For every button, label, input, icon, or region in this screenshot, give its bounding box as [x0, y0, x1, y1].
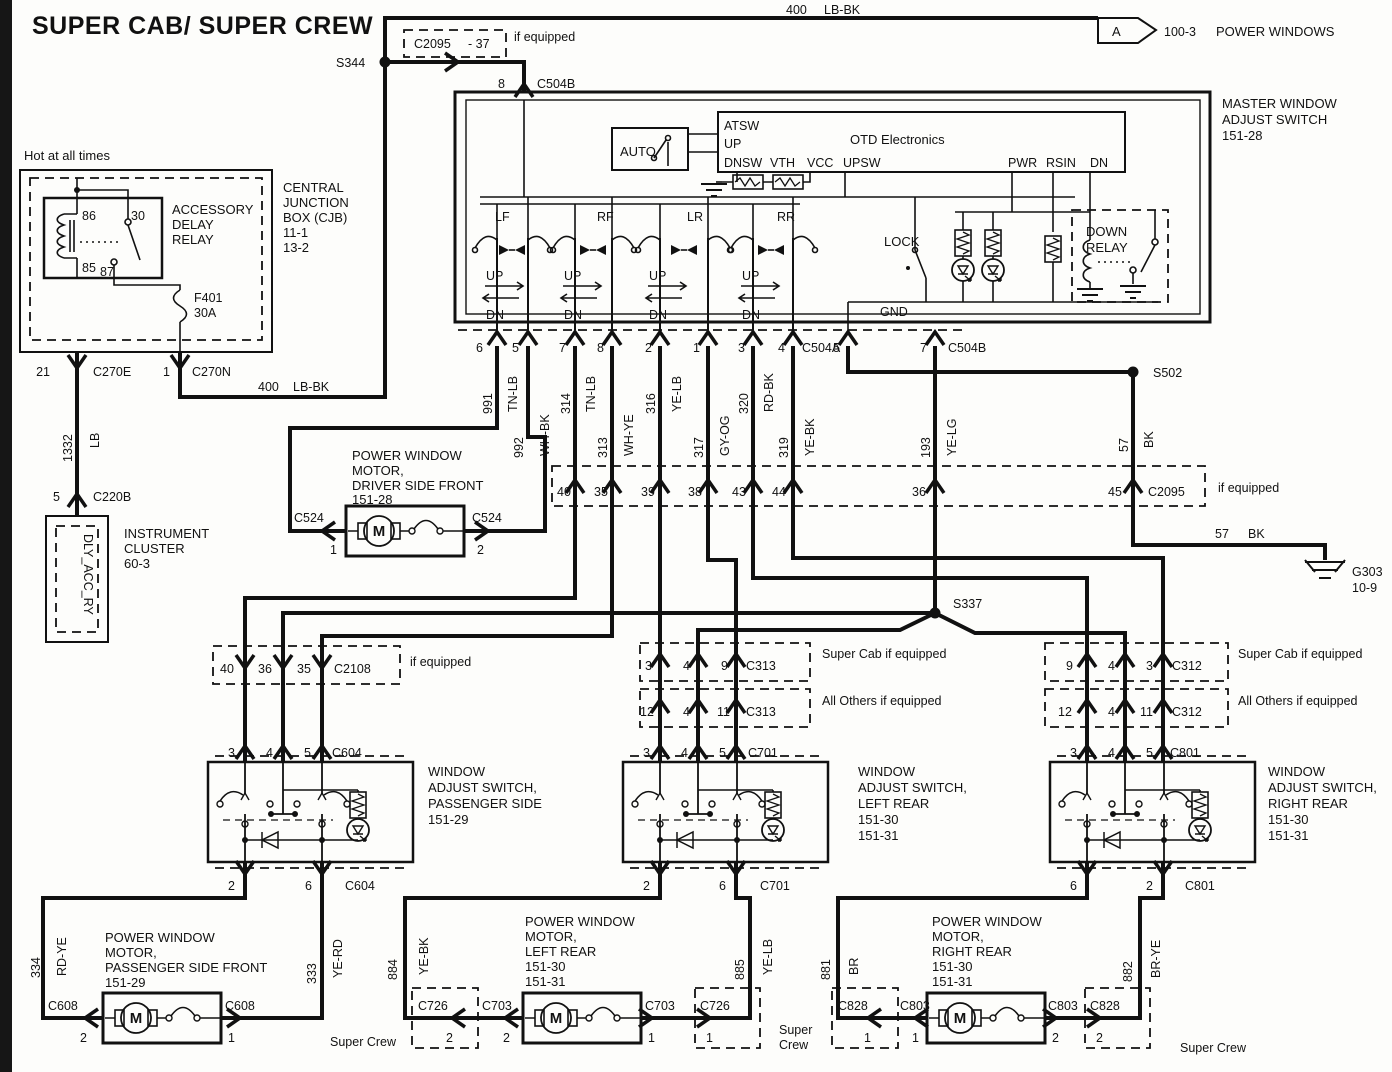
cluster-lf: UP DN — [473, 197, 553, 330]
relay-name-2: DELAY — [172, 217, 214, 232]
pf-motor-m: M — [130, 1010, 143, 1027]
c312-rows: 9 4 3 C312 Super Cab if equipped 12 4 11… — [1045, 643, 1362, 727]
c2108-p40: 40 — [220, 662, 234, 676]
wire-320-color: RD-BK — [762, 372, 776, 412]
relay-pin-86: 86 — [82, 209, 96, 223]
splice-s344: S344 — [336, 56, 365, 70]
wire-319-label: 319 — [777, 437, 791, 458]
flag-ref: 100-3 — [1164, 25, 1196, 39]
wire-57-color: BK — [1142, 431, 1156, 448]
c2108-p36: 36 — [258, 662, 272, 676]
c2095-p36: 36 — [912, 485, 926, 499]
lr-dn: DN — [649, 308, 667, 322]
conn-c504b: C504B — [948, 341, 986, 355]
c2095-p44: 44 — [772, 485, 786, 499]
cjb-ref-1: 11-1 — [283, 225, 308, 240]
c312-r1-p3: 3 — [1146, 659, 1153, 673]
lrm-ref1: 151-30 — [525, 959, 565, 974]
passenger-front-motor: 334 RD-YE 333 YE-RD POWER WINDOW MOTOR, … — [29, 930, 397, 1049]
lr-sw-3: LEFT REAR — [858, 796, 929, 811]
c504a-pin4: 4 — [778, 341, 785, 355]
wire-193-label: 193 — [919, 437, 933, 458]
c504b-pin7: 7 — [920, 341, 927, 355]
relay-pin-30: 30 — [131, 209, 145, 223]
fuse-name: F401 — [194, 291, 223, 305]
lrm-2: MOTOR, — [525, 929, 577, 944]
wire-334-label: 334 — [29, 957, 43, 978]
right-rear-motor: 881 BR 882 BR-YE POWER WINDOW MOTOR, RIG… — [819, 914, 1247, 1055]
wire-317 — [708, 346, 736, 762]
lr-sw-ref1: 151-30 — [858, 812, 898, 827]
conn-c313-2: C313 — [746, 705, 776, 719]
wire-991 — [290, 346, 497, 531]
c801-p6: 6 — [1070, 879, 1077, 893]
c703-p2: 2 — [503, 1031, 510, 1045]
wire-316-color: YE-LB — [670, 376, 684, 412]
c604-p4: 4 — [266, 746, 273, 760]
relay-name-1: ACCESSORY — [172, 202, 254, 217]
rr-dn: DN — [742, 308, 760, 322]
c2095-p40: 40 — [557, 485, 571, 499]
lrm-ref2: 151-31 — [525, 974, 565, 989]
wire-193-color: YE-LG — [945, 418, 959, 456]
rr-sw-1: WINDOW — [1268, 764, 1326, 779]
wiring-diagram-page: SUPER CAB/ SUPER CREW 400 LB-BK A 100-3 … — [0, 0, 1392, 1072]
otd-pwr: PWR — [1008, 156, 1037, 170]
c504a-pin2: 2 — [645, 341, 652, 355]
pf-motor-3: PASSENGER SIDE FRONT — [105, 960, 267, 975]
drv-motor-2: MOTOR, — [352, 463, 404, 478]
wire-314 — [245, 346, 575, 762]
c801-p2: 2 — [1146, 879, 1153, 893]
wire-319-color: YE-BK — [803, 418, 817, 456]
c608-p2: 2 — [80, 1031, 87, 1045]
all-others-mid: All Others if equipped — [822, 694, 942, 708]
conn-c828-r: C828 — [1090, 999, 1120, 1013]
lf-up: UP — [486, 269, 503, 283]
wire-885-label: 885 — [733, 959, 747, 980]
c504b-pin5: 5 — [833, 341, 840, 355]
c313-rows: 3 4 9 C313 Super Cab if equipped 12 4 11… — [640, 643, 946, 727]
otd-rsin: RSIN — [1046, 156, 1076, 170]
super-mid: Super — [779, 1023, 812, 1037]
wiring-diagram: SUPER CAB/ SUPER CREW 400 LB-BK A 100-3 … — [0, 0, 1392, 1072]
wire-57-bk — [1133, 372, 1325, 560]
rr-sw-3: RIGHT REAR — [1268, 796, 1348, 811]
drv-motor-3: DRIVER SIDE FRONT — [352, 478, 484, 493]
otd-title: OTD Electronics — [850, 132, 945, 147]
pass-sw-3: PASSENGER SIDE — [428, 796, 542, 811]
wire-882-color: BR-YE — [1149, 940, 1163, 978]
wire-314-color: TN-LB — [584, 376, 598, 412]
rf-dn: DN — [564, 308, 582, 322]
conn-c701-bot: C701 — [760, 879, 790, 893]
otd-dnsw: DNSW — [724, 156, 762, 170]
relay-pin-87: 87 — [100, 265, 114, 279]
cluster-name-1: INSTRUMENT — [124, 526, 209, 541]
c313-r1-p9: 9 — [721, 659, 728, 673]
c828-p2: 2 — [1096, 1031, 1103, 1045]
c2095-pin37: - 37 — [468, 37, 490, 51]
conn-c726-l: C726 — [418, 999, 448, 1013]
conn-c801-top: C801 — [1170, 746, 1200, 760]
cjb-name-3: BOX (CJB) — [283, 210, 347, 225]
wire-333-label: 333 — [305, 963, 319, 984]
lf-dn: DN — [486, 308, 504, 322]
wire-991-label: 991 — [481, 393, 495, 414]
c313-r1-p4: 4 — [683, 659, 690, 673]
rrm-ref2: 151-31 — [932, 974, 972, 989]
wire-ground-right-switch — [935, 613, 1125, 762]
c312-r1-p9: 9 — [1066, 659, 1073, 673]
super-crew-right: Super Crew — [1180, 1041, 1247, 1055]
pin-5-c220b: 5 — [53, 490, 60, 504]
drv-motor-m: M — [373, 523, 386, 540]
lrm-3: LEFT REAR — [525, 944, 596, 959]
super-cab-mid: Super Cab if equipped — [822, 647, 946, 661]
page-title: SUPER CAB/ SUPER CREW — [32, 12, 373, 40]
wire-400-label-2: 400 — [258, 380, 279, 394]
if-equipped-top: if equipped — [514, 30, 575, 44]
conn-c270e: C270E — [93, 365, 131, 379]
super-crew-left: Super Crew — [330, 1035, 397, 1049]
relay-name-3: RELAY — [172, 232, 214, 247]
wire-992-label: 992 — [512, 437, 526, 458]
wire-57-color-2: BK — [1248, 527, 1265, 541]
pf-motor-ref: 151-29 — [105, 975, 145, 990]
c313-r1-p3: 3 — [645, 659, 652, 673]
c803-p1: 1 — [912, 1031, 919, 1045]
rrm-m: M — [954, 1010, 967, 1027]
otd-atsw: ATSW — [724, 119, 759, 133]
conn-c803-r: C803 — [1048, 999, 1078, 1013]
conn-c608-l: C608 — [48, 999, 78, 1013]
conn-c312-2: C312 — [1172, 705, 1202, 719]
pass-sw-2: ADJUST SWITCH, — [428, 780, 537, 795]
c504a-pin5: 5 — [512, 341, 519, 355]
wire-400-color: LB-BK — [824, 3, 861, 17]
auto-otd-links — [688, 134, 718, 152]
fuse-symbol — [174, 290, 187, 322]
all-others-right: All Others if equipped — [1238, 694, 1358, 708]
down-relay-2: RELAY — [1086, 240, 1128, 255]
conn-c803-l: C803 — [900, 999, 930, 1013]
right-rear-switch: 3 4 5 C801 WINDOW ADJUST SWITCH, RIGHT R… — [1050, 746, 1377, 893]
wire-882-label: 882 — [1121, 961, 1135, 982]
conn-c703-l: C703 — [482, 999, 512, 1013]
splice-dot-s344 — [380, 57, 391, 68]
wire-317-color: GY-OG — [718, 415, 732, 456]
pin-1-c270n: 1 — [163, 365, 170, 379]
instrument-cluster: DLY_ACC_RY INSTRUMENT CLUSTER 60-3 — [46, 516, 209, 642]
wire-313-label: 313 — [596, 437, 610, 458]
c803-p2: 2 — [1052, 1031, 1059, 1045]
cluster-rr: UP DN — [729, 197, 818, 330]
conn-c270n: C270N — [192, 365, 231, 379]
c504a-pin8: 8 — [597, 341, 604, 355]
g303-label: G303 — [1352, 565, 1383, 579]
passenger-switch: 3 4 5 C604 WINDOW ADJUST SWITCH, PASSENG… — [208, 746, 542, 893]
relay-pin-85: 85 — [82, 261, 96, 275]
driver-front-motor: POWER WINDOW MOTOR, DRIVER SIDE FRONT 15… — [294, 448, 502, 557]
c604-p6: 6 — [305, 879, 312, 893]
conn-c524-l: C524 — [294, 511, 324, 525]
wire-313-color: WH-YE — [622, 414, 636, 456]
relay-coil — [57, 214, 64, 258]
conn-c220b: C220B — [93, 490, 131, 504]
pf-motor-2: MOTOR, — [105, 945, 157, 960]
conn-c313-1: C313 — [746, 659, 776, 673]
wire-881-label: 881 — [819, 959, 833, 980]
rr-sw-ref2: 151-31 — [1268, 828, 1308, 843]
lrm-1: POWER WINDOW — [525, 914, 635, 929]
conn-c504b-top: C504B — [537, 77, 575, 91]
c2108-p35: 35 — [297, 662, 311, 676]
otd-vth: VTH — [770, 156, 795, 170]
otd-dn: DN — [1090, 156, 1108, 170]
lr-label: LR — [687, 210, 703, 224]
c801-p4: 4 — [1108, 746, 1115, 760]
central-junction-box: Hot at all times 86 30 85 87 ACCESSORY D… — [20, 148, 349, 504]
conn-c604-bot: C604 — [345, 879, 375, 893]
super-cab-right: Super Cab if equipped — [1238, 647, 1362, 661]
remote-connector-dashes — [215, 756, 1247, 868]
wire-400-label: 400 — [786, 3, 807, 17]
splice-s337: S337 — [953, 597, 982, 611]
c701-p3: 3 — [643, 746, 650, 760]
wire-992 — [464, 346, 545, 531]
wire-1332-color: LB — [88, 433, 102, 448]
c2095-p43: 43 — [732, 485, 746, 499]
c2095-p38: 38 — [688, 485, 702, 499]
c504a-pin3: 3 — [738, 341, 745, 355]
c801-p3: 3 — [1070, 746, 1077, 760]
otd-up: UP — [724, 137, 741, 151]
pin-8: 8 — [498, 77, 505, 91]
wire-57-label-2: 57 — [1215, 527, 1229, 541]
cjb-name-2: JUNCTION — [283, 195, 349, 210]
wire-57-label: 57 — [1117, 438, 1131, 452]
c701-p5: 5 — [719, 746, 726, 760]
wire-400-color-2: LB-BK — [293, 380, 330, 394]
c604-p5: 5 — [304, 746, 311, 760]
wire-333-color: YE-RD — [331, 939, 345, 978]
c703-p1: 1 — [648, 1031, 655, 1045]
conn-c604-top: C604 — [332, 746, 362, 760]
crew-mid: Crew — [779, 1038, 809, 1052]
if-equipped-c2108: if equipped — [410, 655, 471, 669]
relay-core — [70, 220, 74, 252]
auto-label: AUTO — [620, 144, 656, 159]
page-edge-bar — [0, 0, 12, 1072]
flag-letter: A — [1112, 24, 1121, 39]
cluster-ref: 60-3 — [124, 556, 150, 571]
splice-dot-s337 — [930, 608, 941, 619]
c313-r2-p12: 12 — [640, 705, 654, 719]
c608-p1: 1 — [228, 1031, 235, 1045]
cluster-rf: UP DN — [551, 197, 637, 330]
wire-317-label: 317 — [692, 437, 706, 458]
c701-p6: 6 — [719, 879, 726, 893]
otd-upsw: UPSW — [843, 156, 881, 170]
if-equipped-mid: if equipped — [1218, 481, 1279, 495]
lr-sw-ref2: 151-31 — [858, 828, 898, 843]
master-outer-box — [455, 92, 1210, 322]
left-rear-switch: 3 4 5 C701 WINDOW ADJUST SWITCH, LEFT RE… — [623, 746, 967, 893]
conn-c726-r: C726 — [700, 999, 730, 1013]
wire-884-color: YE-BK — [417, 937, 431, 975]
cjb-name-1: CENTRAL — [283, 180, 344, 195]
wire-881-color: BR — [847, 958, 861, 975]
c701-p2: 2 — [643, 879, 650, 893]
rr-sw-ref1: 151-30 — [1268, 812, 1308, 827]
otd-vcc: VCC — [807, 156, 833, 170]
c504a-pin6: 6 — [476, 341, 483, 355]
c504a-pin7: 7 — [559, 341, 566, 355]
conn-c828-l: C828 — [838, 999, 868, 1013]
rrm-2: MOTOR, — [932, 929, 984, 944]
conn-c2095-top: C2095 — [414, 37, 451, 51]
c828-p1: 1 — [864, 1031, 871, 1045]
conn-c2095-mid: C2095 — [1148, 485, 1185, 499]
hot-label: Hot at all times — [24, 148, 110, 163]
wire-316-label: 316 — [644, 393, 658, 414]
conn-c701-top: C701 — [748, 746, 778, 760]
c524-pin2: 2 — [477, 543, 484, 557]
c312-r2-p11: 11 — [1140, 705, 1153, 719]
c726-p1: 1 — [706, 1031, 713, 1045]
pf-motor-1: POWER WINDOW — [105, 930, 215, 945]
wire-gnd-s502 — [848, 346, 1133, 372]
cluster-lr: UP DN — [636, 197, 733, 330]
conn-c801-bot: C801 — [1185, 879, 1215, 893]
rrm-1: POWER WINDOW — [932, 914, 1042, 929]
master-window-switch: MASTER WINDOW ADJUST SWITCH 151-28 AUTO … — [455, 92, 1338, 330]
master-ref: 151-28 — [1222, 128, 1262, 143]
g303-ref: 10-9 — [1352, 581, 1377, 595]
wire-885-color: YE-LB — [761, 939, 775, 975]
c604-p3: 3 — [228, 746, 235, 760]
wire-992-color: WH-BK — [538, 414, 552, 456]
lr-up: UP — [649, 269, 666, 283]
g303-ground-symbol — [1305, 560, 1345, 578]
wire-ground-mid-switch — [698, 613, 935, 762]
conn-c524-r: C524 — [472, 511, 502, 525]
conn-c608-r: C608 — [225, 999, 255, 1013]
conn-c703-r: C703 — [645, 999, 675, 1013]
splice-s502: S502 — [1153, 366, 1182, 380]
pin-21: 21 — [36, 365, 50, 379]
wire-1332-label: 1332 — [61, 434, 75, 462]
splice-dot-s502 — [1128, 367, 1139, 378]
master-name-1: MASTER WINDOW — [1222, 96, 1338, 111]
c312-r2-p12: 12 — [1058, 705, 1072, 719]
cluster-module: DLY_ACC_RY — [81, 534, 95, 615]
c701-p4: 4 — [681, 746, 688, 760]
c313-r2-p4: 4 — [683, 705, 690, 719]
c313-r2-p11: 11 — [717, 705, 730, 719]
drv-motor-1: POWER WINDOW — [352, 448, 462, 463]
c504a-pin1: 1 — [693, 341, 700, 355]
c2095-p39: 39 — [641, 485, 655, 499]
cluster-name-2: CLUSTER — [124, 541, 185, 556]
wire-314-label: 314 — [559, 393, 573, 414]
auto-switch-symbol — [654, 140, 668, 166]
circuit-dest: POWER WINDOWS — [1216, 24, 1335, 39]
rr-up: UP — [742, 269, 759, 283]
conn-c312-1: C312 — [1172, 659, 1202, 673]
rr-sw-2: ADJUST SWITCH, — [1268, 780, 1377, 795]
pass-sw-ref: 151-29 — [428, 812, 468, 827]
fuse-amps: 30A — [194, 306, 217, 320]
wire-884-label: 884 — [386, 959, 400, 980]
gnd-label: GND — [880, 305, 908, 319]
lr-sw-2: ADJUST SWITCH, — [858, 780, 967, 795]
resistor-links — [722, 172, 810, 182]
c604-p2: 2 — [228, 879, 235, 893]
c726-p2: 2 — [446, 1031, 453, 1045]
lr-sw-1: WINDOW — [858, 764, 916, 779]
wire-334-color: RD-YE — [55, 937, 69, 976]
rf-up: UP — [564, 269, 581, 283]
lrm-m: M — [550, 1010, 563, 1027]
pass-sw-1: WINDOW — [428, 764, 486, 779]
conn-c2108: C2108 — [334, 662, 371, 676]
wire-320-label: 320 — [737, 393, 751, 414]
wire-labels: 991 TN-LB 992 WH-BK 314 TN-LB 313 WH-YE … — [481, 372, 1156, 458]
c2095-p45: 45 — [1108, 485, 1122, 499]
circuit-flag — [1098, 18, 1156, 43]
c312-r2-p4: 4 — [1108, 705, 1115, 719]
relay-contact — [128, 225, 140, 260]
c2095-p35: 35 — [594, 485, 608, 499]
cjb-ref-2: 13-2 — [283, 240, 309, 255]
down-relay-1: DOWN — [1086, 224, 1127, 239]
wire-991-color: TN-LB — [506, 376, 520, 412]
rrm-3: RIGHT REAR — [932, 944, 1012, 959]
c801-p5: 5 — [1146, 746, 1153, 760]
rrm-ref1: 151-30 — [932, 959, 972, 974]
c312-r1-p4: 4 — [1108, 659, 1115, 673]
c2108-row: 40 36 35 C2108 if equipped — [213, 646, 471, 684]
c524-pin1: 1 — [330, 543, 337, 557]
master-name-2: ADJUST SWITCH — [1222, 112, 1327, 127]
